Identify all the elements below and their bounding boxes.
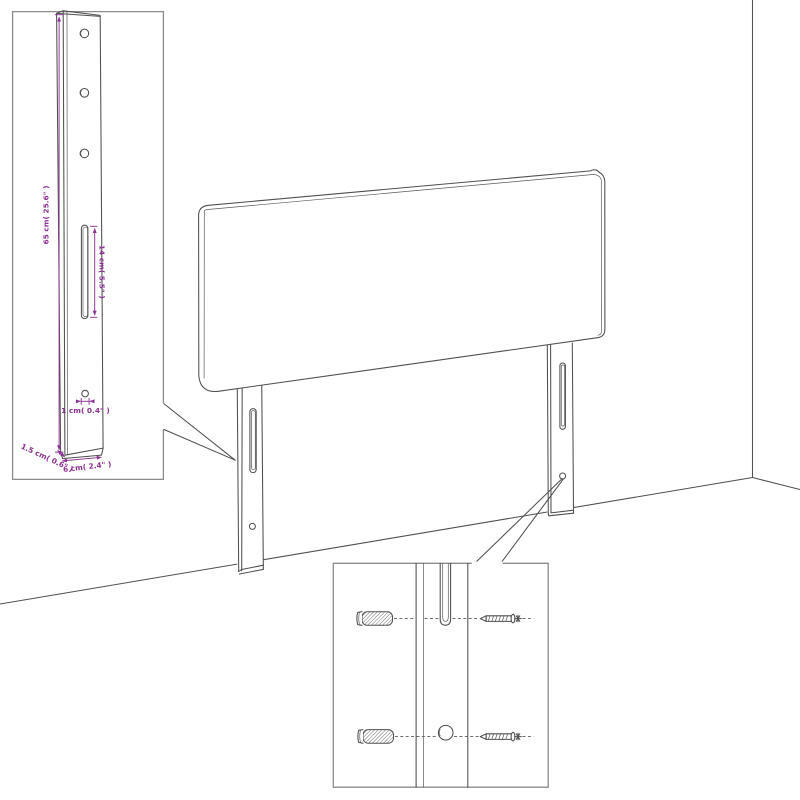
magnified-hole <box>438 725 453 740</box>
floor-line-left <box>0 478 753 605</box>
inset-leader-left <box>164 404 235 461</box>
magnified-slot <box>440 563 450 625</box>
panel-outline <box>199 170 605 392</box>
leg-drawing <box>57 11 104 459</box>
screw-inset-border <box>333 563 548 787</box>
dimension-hole-diameter-label: 1 cm( 0.4" ) <box>61 406 110 415</box>
leg-slot <box>81 225 88 318</box>
dimension-height-label: 65 cm( 25.6" ) <box>42 186 51 245</box>
wall-anchor-bottom <box>358 730 394 744</box>
leg-hole-middle <box>80 89 89 98</box>
screw-bottom <box>480 732 521 741</box>
screw-top <box>480 614 521 623</box>
dimension-height <box>55 15 63 452</box>
screw-detail-inset <box>333 563 548 787</box>
wall-anchor-top <box>357 612 393 626</box>
headboard-panel <box>199 170 605 392</box>
leg-detail-inset: 65 cm( 25.6" ) 14 cm( 5.5" ) 1 cm( 0.4" … <box>13 11 164 480</box>
leg-small-hole <box>82 390 89 397</box>
dimension-depth <box>58 450 65 457</box>
floor-line-right <box>753 478 800 490</box>
magnified-leg-edges <box>416 563 468 787</box>
right-leg-hole <box>560 473 566 479</box>
dimension-depth-label: 1.5 cm( 0.6" ) <box>20 442 75 474</box>
left-leg <box>237 380 263 574</box>
dimension-hole-diameter <box>76 398 95 405</box>
guide-dashes <box>394 619 534 737</box>
leg-hole-top <box>80 29 89 38</box>
leg-hole-bottom <box>80 149 89 158</box>
dimension-slot-length-label: 14 cm( 5.5" ) <box>97 245 106 299</box>
dimension-slot-length <box>90 226 97 317</box>
headboard-dimension-diagram: 65 cm( 25.6" ) 14 cm( 5.5" ) 1 cm( 0.4" … <box>0 0 800 800</box>
